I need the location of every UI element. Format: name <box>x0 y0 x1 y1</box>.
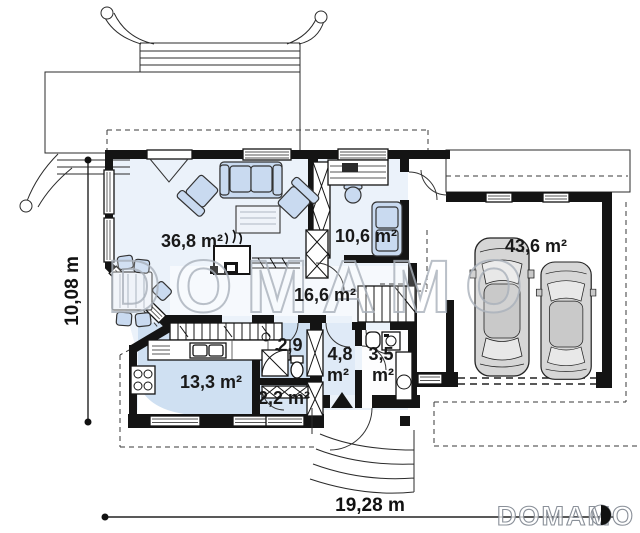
utility-window <box>418 374 442 384</box>
office-chair <box>344 185 362 203</box>
garage-label: 43,6 m² <box>505 236 567 256</box>
closet-window <box>266 416 304 426</box>
closet-label: 2,2 m² <box>258 388 310 408</box>
wc-label-unit: m² <box>372 365 394 385</box>
kitchen-label: 13,3 m² <box>180 372 242 392</box>
coffee-table <box>236 206 280 233</box>
bathroom-label: 2,9 <box>277 335 302 355</box>
porch-column <box>400 416 410 426</box>
laptop-icon <box>342 163 358 172</box>
porch-steps <box>310 408 414 493</box>
wc-counter <box>396 352 412 400</box>
floor-plan-page: DOMAMO 36,8 m² 10,6 m² 43,6 m² 16,6 m² 1… <box>0 0 640 533</box>
stove <box>131 366 155 394</box>
car <box>536 262 596 379</box>
office-window <box>338 149 388 160</box>
sofa <box>220 162 282 198</box>
wc-label-value: 3,5 <box>368 344 393 364</box>
corridor-label-unit: m² <box>327 365 349 385</box>
height-dimension-label: 10,08 m <box>62 256 83 326</box>
living-room-window <box>243 149 291 160</box>
living-room-label: 36,8 m² <box>161 231 223 251</box>
toilet <box>291 356 303 378</box>
garage-roof-overhang <box>446 150 630 192</box>
brand-logo-text: DOMAMO <box>497 501 635 531</box>
dimension-vertical: 10,08 m <box>62 157 92 426</box>
hall-label: 16,6 m² <box>294 285 356 305</box>
floor-plan-drawing: DOMAMO 36,8 m² 10,6 m² 43,6 m² 16,6 m² 1… <box>0 0 640 533</box>
width-dimension-label: 19,28 m <box>335 495 405 516</box>
desk <box>328 160 388 185</box>
office-label: 10,6 m² <box>335 226 397 246</box>
brand-logo: DOMAMO <box>497 501 635 531</box>
corridor-label-value: 4,8 <box>327 344 352 364</box>
sink <box>190 343 226 358</box>
